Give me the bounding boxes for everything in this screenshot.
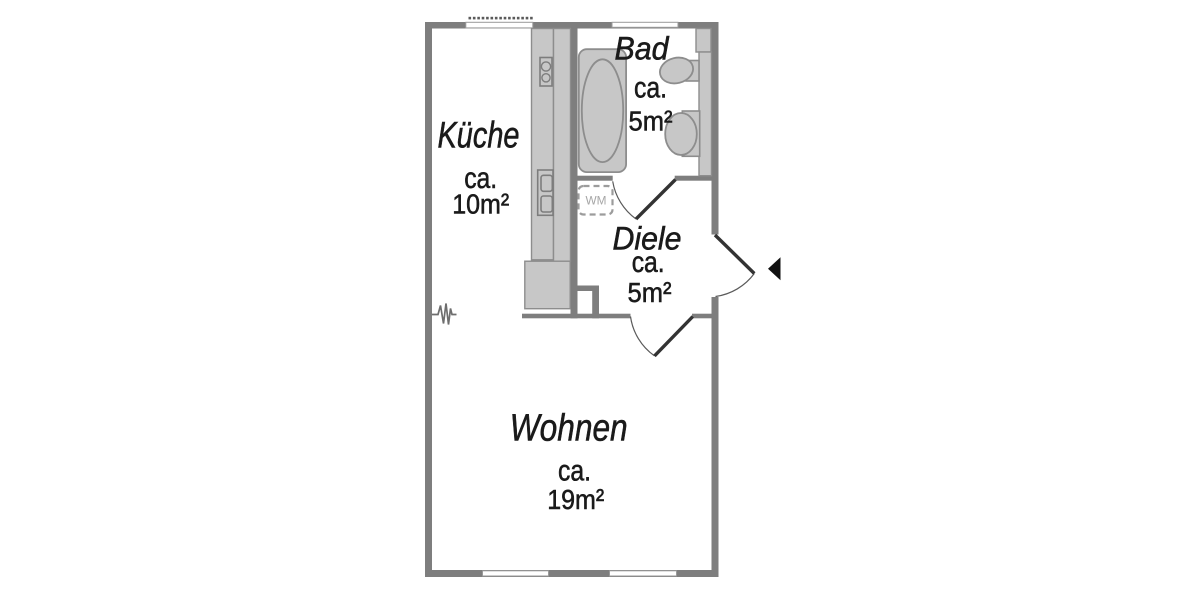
svg-text:ca.: ca. bbox=[632, 246, 665, 279]
svg-text:19m²: 19m² bbox=[547, 484, 604, 515]
svg-text:Bad: Bad bbox=[615, 31, 670, 67]
svg-text:5m²: 5m² bbox=[628, 277, 672, 308]
svg-text:ca.: ca. bbox=[558, 455, 591, 488]
svg-text:Küche: Küche bbox=[438, 115, 520, 156]
svg-text:Wohnen: Wohnen bbox=[510, 408, 628, 450]
svg-text:WM: WM bbox=[586, 196, 607, 208]
svg-text:ca.: ca. bbox=[634, 72, 667, 105]
svg-text:10m²: 10m² bbox=[452, 189, 509, 220]
svg-text:5m²: 5m² bbox=[629, 106, 673, 137]
